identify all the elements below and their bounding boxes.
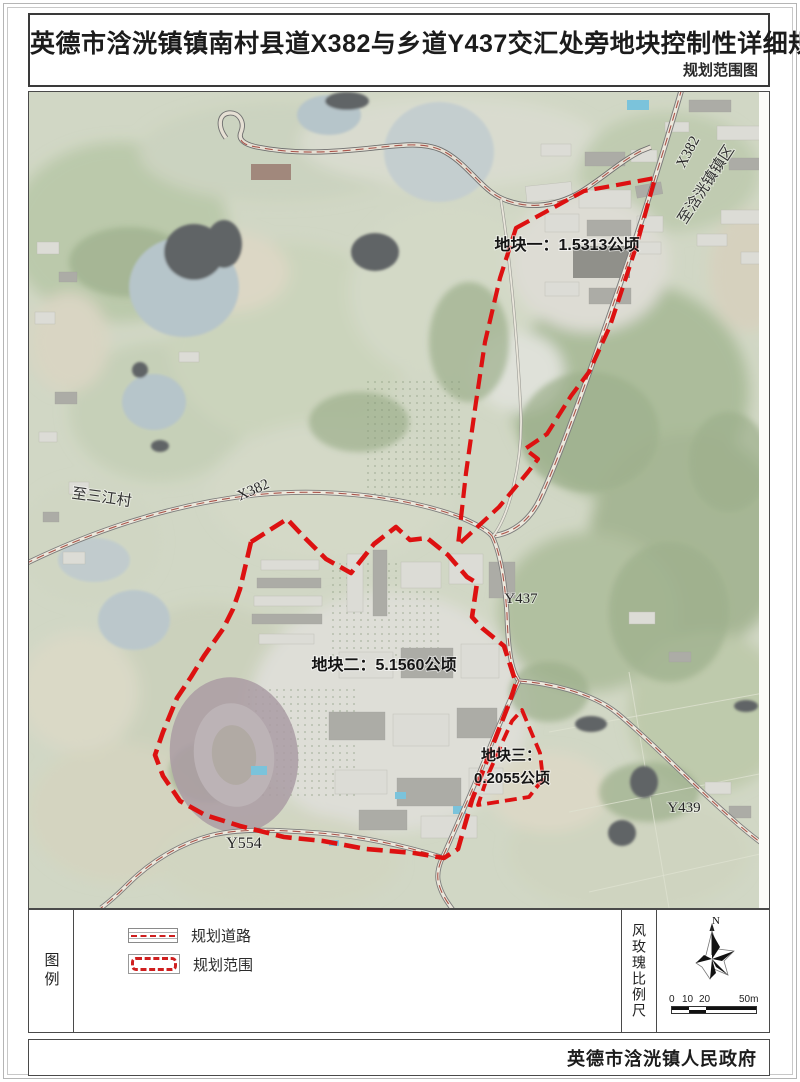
footer-box: 英德市浛洸镇人民政府 — [28, 1039, 770, 1076]
legend-item-label: 规划范围 — [193, 954, 253, 975]
road-label-y437: Y437 — [504, 591, 538, 607]
wind-rose: N — [682, 915, 744, 989]
plot3-area-label-line1: 地块三： — [481, 746, 541, 764]
wind-rose-star — [696, 931, 734, 979]
scale-label-0: 0 — [669, 994, 675, 1005]
plot1-area-label: 地块一：1.5313公顷 — [495, 235, 640, 254]
scale-label-10: 10 — [682, 994, 693, 1005]
map-box: 地块一：1.5313公顷 地块二：5.1560公顷 地块三： 0.2055公顷 … — [28, 91, 770, 909]
legend-item-label: 规划道路 — [191, 925, 251, 946]
legend-title-cell: 图例 — [29, 910, 74, 1032]
plot3-area-label-line2: 0.2055公顷 — [474, 770, 550, 787]
plot2-area-label: 地块二：5.1560公顷 — [312, 655, 457, 674]
publisher-name: 英德市浛洸镇人民政府 — [567, 1045, 757, 1071]
legend-item-planning-scope: 规划范围 — [128, 952, 621, 976]
legend-box: 图例 规划道路 规划范围 风玫瑰比例尺 N — [28, 909, 770, 1033]
road-label-y439: Y439 — [667, 800, 700, 816]
planned-road-symbol — [128, 928, 178, 943]
scale-bar: 0 10 20 50m — [667, 994, 763, 1020]
scale-label-50: 50m — [739, 994, 758, 1005]
title-box: 英德市浛洸镇镇南村县道X382与乡道Y437交汇处旁地块控制性详细规划 规划范围… — [28, 13, 770, 87]
windrose-label-cell: 风玫瑰比例尺 — [622, 910, 657, 1032]
legend-item-planned-road: 规划道路 — [128, 923, 621, 947]
map-right-margin — [759, 92, 769, 908]
legend-items-cell: 规划道路 规划范围 — [74, 910, 622, 1032]
map-canvas: 地块一：1.5313公顷 地块二：5.1560公顷 地块三： 0.2055公顷 … — [29, 92, 769, 908]
north-label: N — [712, 915, 720, 927]
legend-section-label: 图例 — [41, 952, 62, 990]
page-title: 英德市浛洸镇镇南村县道X382与乡道Y437交汇处旁地块控制性详细规划 — [30, 24, 768, 60]
road-label-y554: Y554 — [226, 835, 262, 852]
scale-label-20: 20 — [699, 994, 710, 1005]
planning-map-sheet: { "colors": { "boundary-red": "#dd1111",… — [0, 0, 800, 1082]
scale-bar-graphic — [671, 1006, 757, 1014]
planning-scope-symbol — [128, 954, 180, 974]
page-subtitle: 规划范围图 — [683, 59, 758, 80]
compass-cell: N 0 10 20 50m — [657, 910, 769, 1032]
windrose-scale-label: 风玫瑰比例尺 — [629, 923, 649, 1019]
